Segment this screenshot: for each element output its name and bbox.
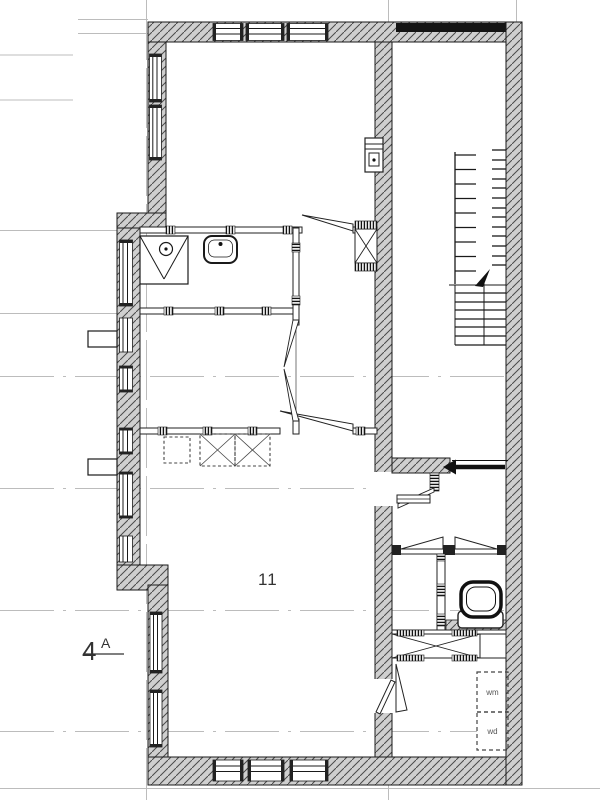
lintel-band <box>396 23 513 32</box>
staircase-icon <box>449 150 506 345</box>
annotations: 11 4 A <box>82 570 278 666</box>
sliding-door-arrow-icon <box>443 460 508 475</box>
window <box>120 366 133 392</box>
section-letter: A <box>101 635 111 651</box>
door-leaf <box>280 411 353 431</box>
duct-shaft-icon <box>392 630 506 661</box>
window <box>290 760 328 781</box>
wall-stub <box>392 458 450 473</box>
window <box>213 760 243 781</box>
door-opening <box>375 472 393 506</box>
window <box>120 536 133 562</box>
door-jamb <box>430 473 439 491</box>
room-number-label: 11 <box>258 570 278 589</box>
dryer-label: wd <box>486 727 497 736</box>
bathroom-block: wm wd <box>392 458 508 750</box>
wall-jog-upper <box>117 213 166 228</box>
door-leaf <box>455 537 497 549</box>
window <box>120 472 133 518</box>
utility-meter-box-icon <box>365 138 383 172</box>
door-leaf <box>396 664 407 712</box>
floor-plan-drawing: wm wd 11 4 A <box>0 0 600 800</box>
stair-direction-arrow-icon <box>475 269 490 287</box>
window <box>287 24 328 41</box>
section-marker: 4 A <box>82 635 124 666</box>
exterior-walls <box>88 22 522 785</box>
window <box>150 105 162 160</box>
kitchen-unit-dashed-icon <box>164 434 270 466</box>
sink-icon <box>204 236 237 263</box>
floor-plan-canvas: wm wd 11 4 A <box>0 0 600 800</box>
window <box>120 318 133 352</box>
window <box>213 24 243 41</box>
exterior-tab <box>88 331 117 347</box>
door-leaf <box>284 320 299 367</box>
window <box>120 428 133 454</box>
window <box>150 612 162 673</box>
window <box>150 690 162 747</box>
window <box>150 54 162 102</box>
section-number: 4 <box>82 636 96 666</box>
wall-right <box>506 22 522 785</box>
duct-shaft-icon <box>355 221 377 271</box>
shower-tray-icon <box>140 236 188 284</box>
window <box>120 240 133 306</box>
door-leaf <box>401 537 443 549</box>
window <box>248 760 284 781</box>
washing-machine-label: wm <box>485 688 499 697</box>
toilet-icon <box>458 582 503 628</box>
wall-bottom <box>148 757 522 785</box>
exterior-tab <box>88 459 117 475</box>
window <box>246 24 284 41</box>
door-leaf <box>302 215 353 231</box>
washing-machine-box: wm <box>477 672 508 712</box>
dryer-box: wd <box>477 712 508 750</box>
